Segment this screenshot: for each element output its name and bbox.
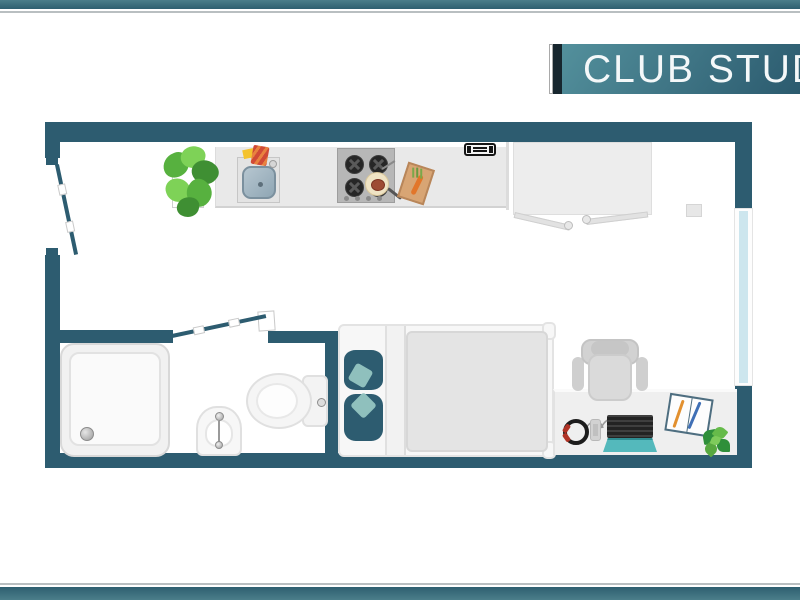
window-glass bbox=[739, 211, 748, 383]
top-border-silver-line bbox=[0, 11, 800, 13]
herbs bbox=[412, 168, 414, 178]
wall-return-stub bbox=[686, 204, 702, 217]
shower-tray bbox=[60, 343, 170, 457]
shower-drain bbox=[80, 427, 94, 441]
entry-door-leaf bbox=[55, 164, 78, 255]
wall-left bbox=[45, 255, 60, 468]
bed-sheet-fold bbox=[385, 326, 406, 455]
wardrobe-door-knob bbox=[564, 221, 573, 230]
hob-knob bbox=[377, 196, 382, 201]
bidet-chain bbox=[218, 421, 220, 443]
music-player bbox=[590, 419, 601, 441]
wall-right-upper bbox=[735, 122, 752, 210]
headphones bbox=[563, 419, 589, 445]
wardrobe bbox=[513, 142, 652, 215]
frying-pan bbox=[365, 172, 389, 196]
top-border-bar bbox=[0, 0, 800, 9]
wall-top-left-corner bbox=[45, 122, 60, 158]
wall-right-lower bbox=[735, 386, 752, 468]
hob-knob bbox=[344, 196, 349, 201]
toilet-bowl bbox=[246, 373, 312, 429]
banner-dark-bar bbox=[553, 44, 562, 94]
chair-armrest bbox=[636, 357, 648, 391]
page-title: CLUB STUD bbox=[583, 48, 800, 92]
wall-bathroom-top-right bbox=[268, 331, 328, 343]
bed-duvet bbox=[406, 331, 548, 452]
wardrobe-door-knob bbox=[582, 215, 591, 224]
bathroom-door-frame bbox=[257, 310, 275, 331]
sink-drain bbox=[258, 182, 263, 187]
sink-basin bbox=[242, 166, 276, 199]
bathroom-door-leaf bbox=[172, 314, 267, 338]
chair-armrest bbox=[572, 357, 584, 391]
wall-bathroom-top-left bbox=[45, 330, 173, 343]
wall-vent bbox=[464, 143, 496, 156]
hob-burner bbox=[345, 178, 364, 197]
dish-cloth bbox=[250, 145, 269, 166]
banner-panel: CLUB STUD bbox=[562, 44, 800, 94]
laptop-base bbox=[603, 438, 657, 452]
window bbox=[734, 208, 753, 386]
wall-top bbox=[45, 122, 752, 142]
bottom-border-bar bbox=[0, 587, 800, 600]
pen-orange bbox=[672, 400, 684, 428]
bidet-plug bbox=[215, 441, 223, 449]
office-chair-seat bbox=[588, 354, 632, 401]
hob-burner bbox=[345, 155, 364, 174]
hob-knob bbox=[366, 196, 371, 201]
laptop-keyboard bbox=[607, 415, 653, 438]
bidet-tap bbox=[215, 412, 224, 421]
counter-divider bbox=[506, 142, 509, 210]
hob-knob bbox=[355, 196, 360, 201]
bidet bbox=[196, 406, 242, 456]
toilet-seat bbox=[256, 383, 298, 419]
pan-food bbox=[371, 179, 385, 191]
toilet-flush-button bbox=[317, 398, 326, 407]
sink-tap bbox=[269, 160, 277, 168]
title-banner: CLUB STUD bbox=[549, 44, 800, 94]
floor-plan-page: CLUB STUD bbox=[0, 0, 800, 600]
